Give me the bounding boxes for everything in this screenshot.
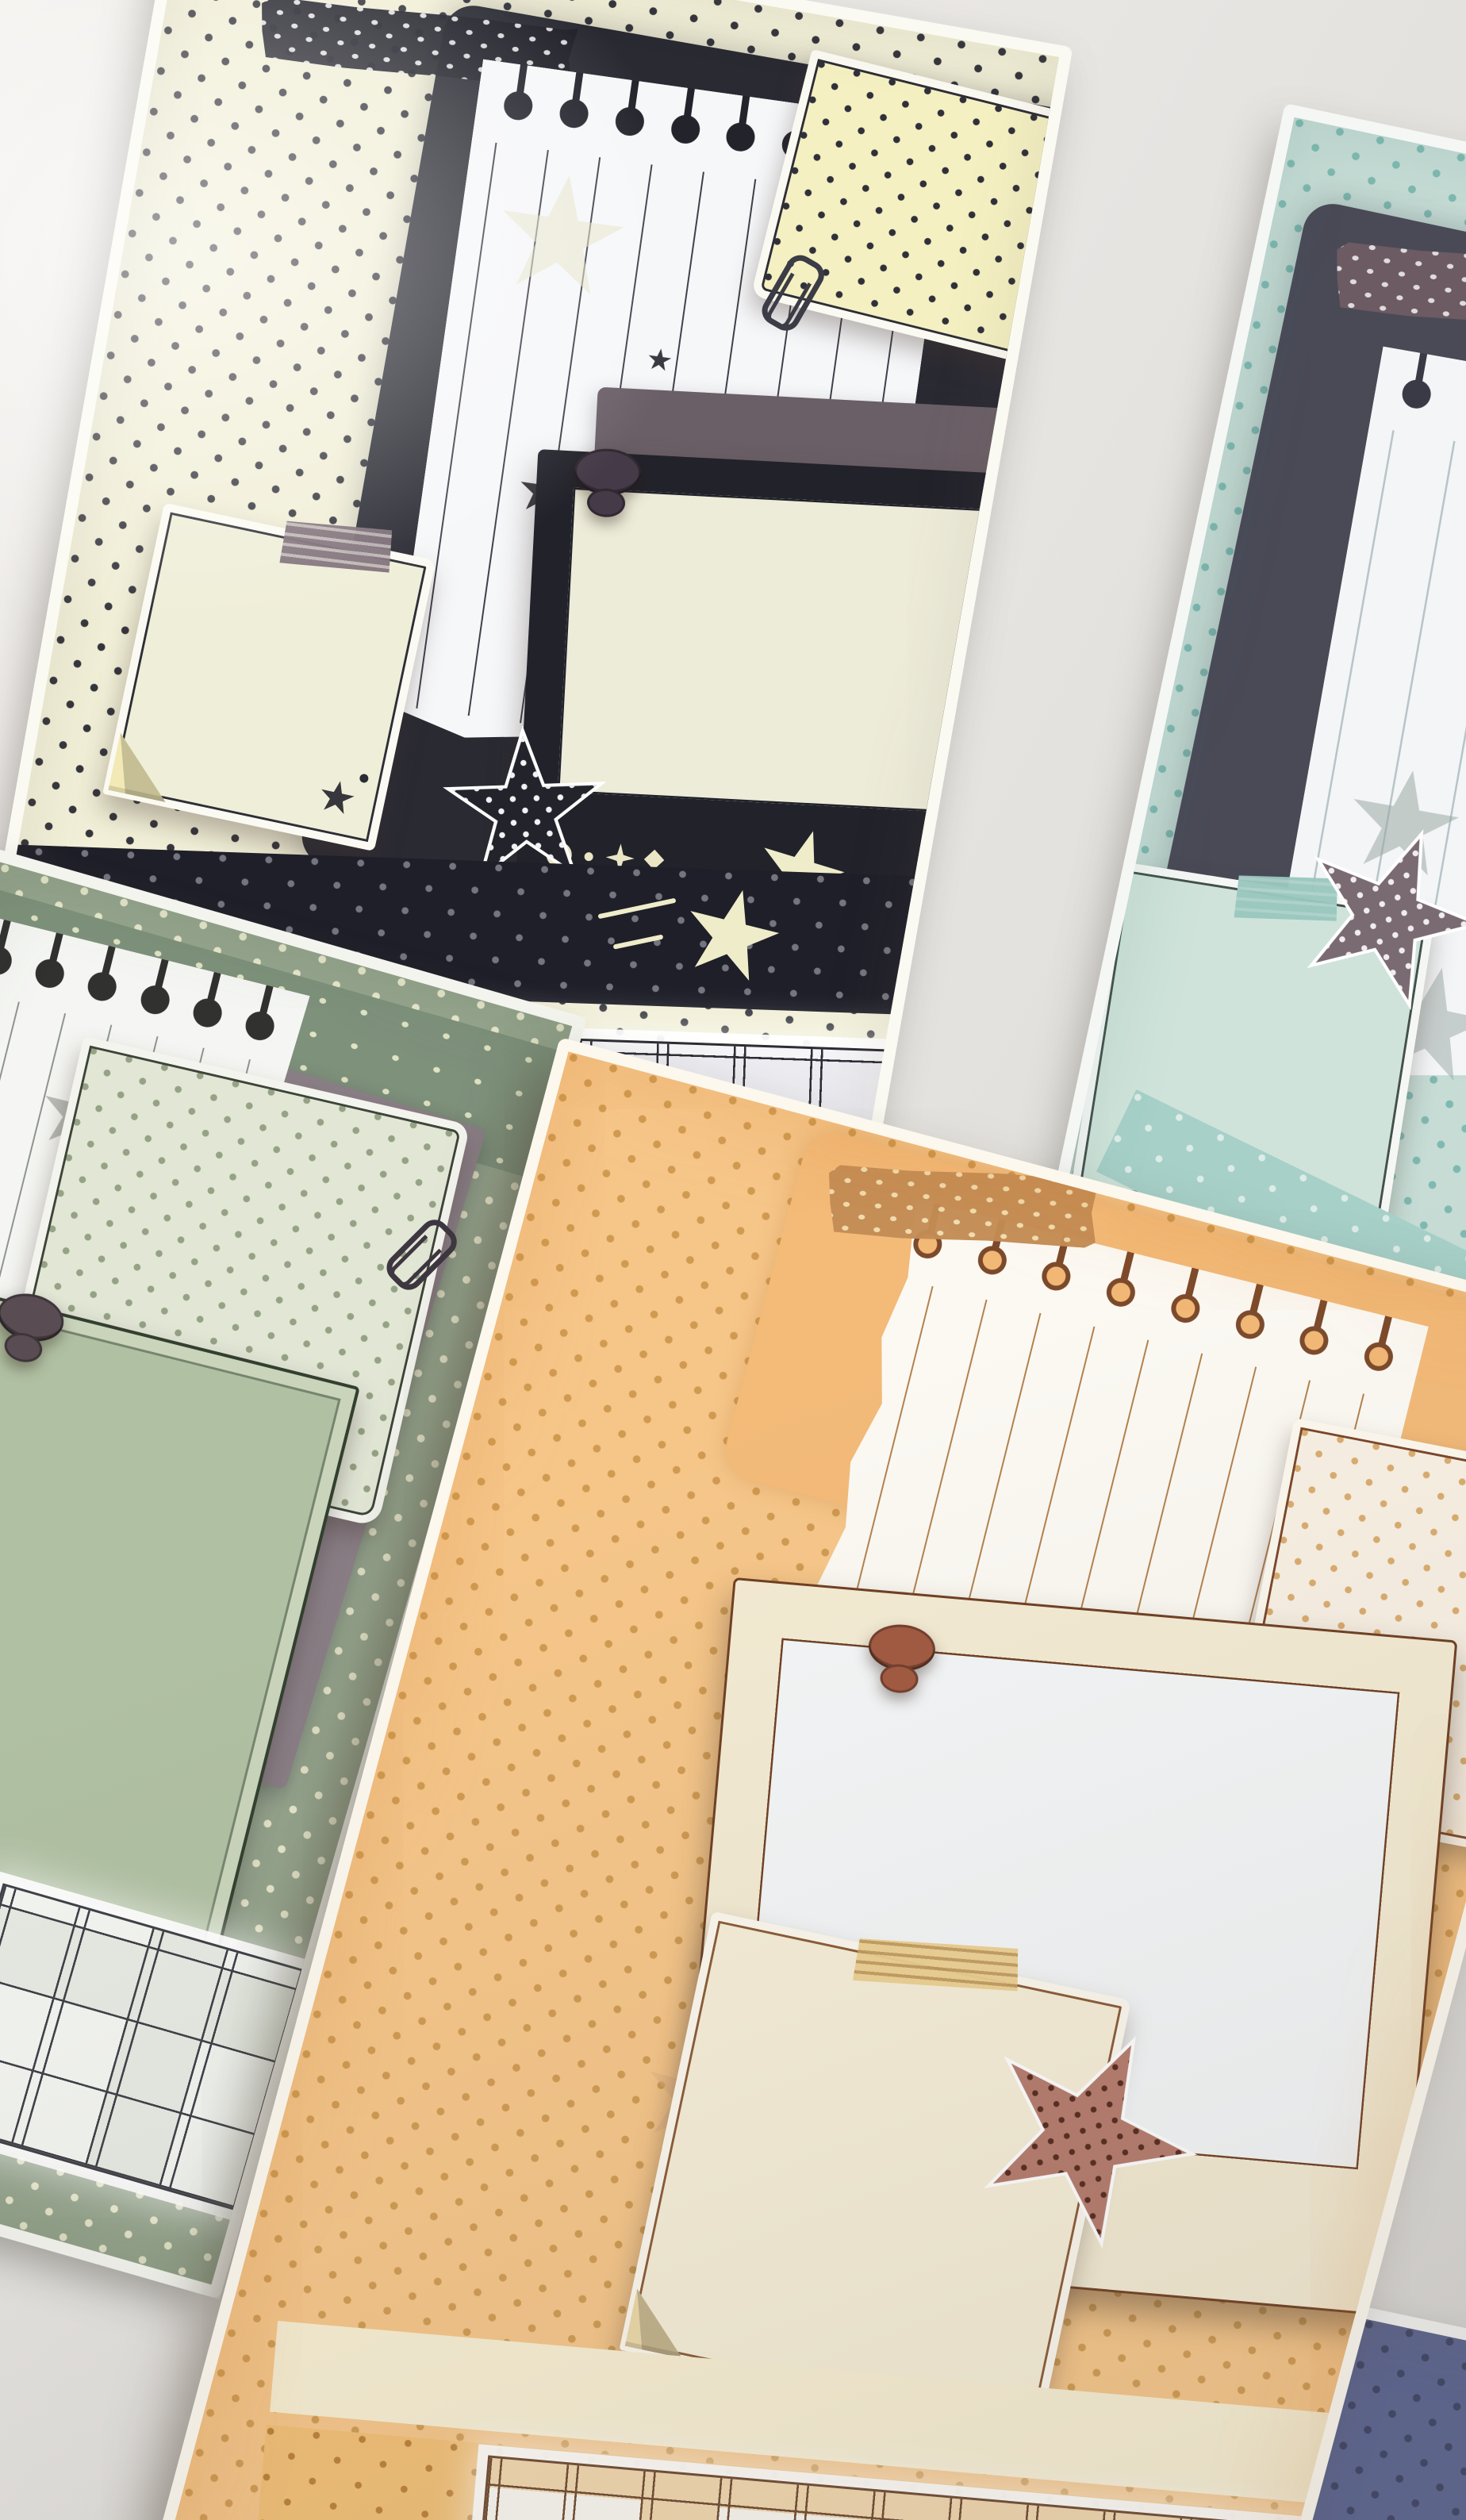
binder-hole-icon [1230,1279,1274,1354]
shooting-star-icon [674,878,789,993]
push-pin-icon [0,1286,72,1381]
binder-hole-icon [82,942,126,1016]
folded-corner [108,732,178,802]
binder-hole-icon [667,85,705,158]
binder-hole-icon [1165,1263,1210,1338]
binder-hole-icon [723,93,761,166]
push-pin-icon [568,447,645,530]
star-trail [613,934,664,949]
folded-corner [625,2288,695,2358]
mini-star-icon [316,778,357,819]
binder-hole-icon [0,916,21,990]
binder-hole-icon [1100,1247,1145,1322]
binder-hole-icon [187,968,232,1043]
mini-dot-icon [359,773,369,783]
star-trail [597,898,676,920]
sparkle-dot-icon [584,851,593,861]
binder-hole-icon [1294,1296,1338,1370]
push-pin-icon [861,1622,940,1708]
washi-tape-small [1234,872,1339,925]
binder-hole-icon [1358,1312,1403,1386]
polaroid-frame [516,449,1042,909]
binder-hole-icon [29,928,74,1003]
photo-area [558,488,1003,814]
desk-photo [0,0,1466,2520]
binder-hole-icon [556,69,594,142]
binder-hole-icon [612,77,650,150]
binder-hole-icon [135,955,179,1029]
binder-hole-icon [1398,349,1438,423]
binder-hole-icon [501,61,539,134]
binder-hole-icon [240,981,284,1055]
